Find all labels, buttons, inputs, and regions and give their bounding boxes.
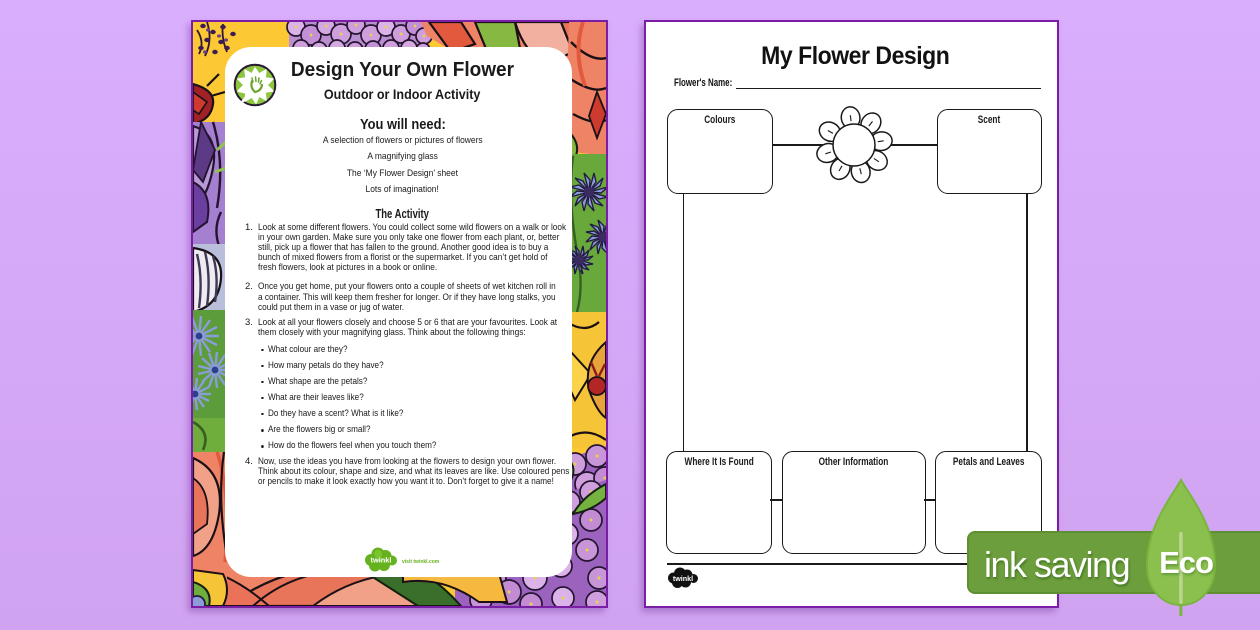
svg-text:twinkl: twinkl [371, 555, 392, 564]
svg-text:twinkl: twinkl [673, 574, 693, 583]
